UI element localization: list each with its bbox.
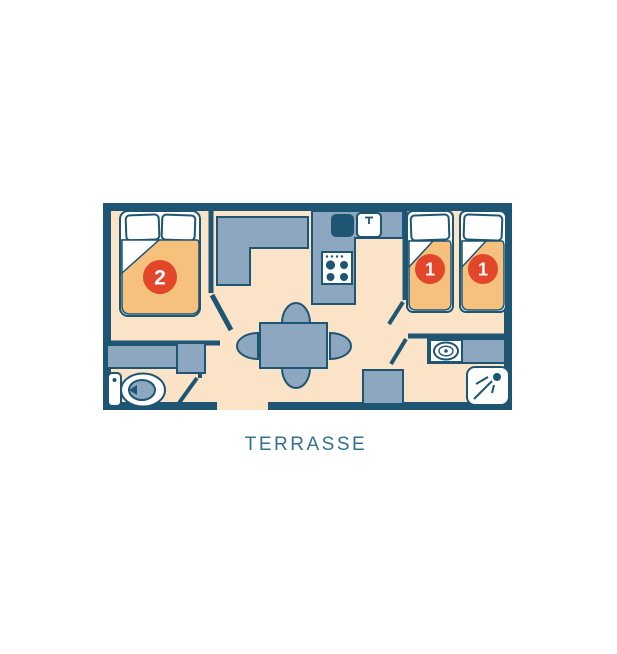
terrace-label: TERRASSE: [245, 434, 367, 455]
pillow-icon: [126, 214, 160, 240]
wardrobe-icon: [107, 345, 177, 368]
toilet-icon: [108, 373, 165, 407]
shower-icon: [467, 367, 509, 405]
bed-capacity-label: 1: [478, 260, 488, 280]
single-bed-icon: 1: [460, 211, 506, 312]
pillow-icon: [411, 214, 450, 240]
floor-plan-canvas: 2 1 1: [0, 0, 617, 654]
sink-basin-icon: [331, 214, 354, 237]
dining-table-icon: [260, 323, 327, 368]
pillow-icon: [162, 214, 196, 240]
cabinet-icon: [363, 370, 403, 404]
washbasin-icon: [430, 340, 462, 362]
bedroom-double: 2: [120, 211, 200, 316]
bed-capacity-label: 1: [425, 260, 435, 280]
wardrobe-icon: [177, 343, 205, 373]
pillow-icon: [464, 214, 503, 240]
single-bed-icon: 1: [407, 211, 453, 312]
bed-capacity-label: 2: [154, 267, 166, 290]
stove-icon: [322, 252, 352, 284]
faucet-icon: [357, 213, 381, 237]
double-bed-icon: 2: [120, 211, 200, 316]
floor-plan-page: 2 1 1: [0, 0, 617, 654]
